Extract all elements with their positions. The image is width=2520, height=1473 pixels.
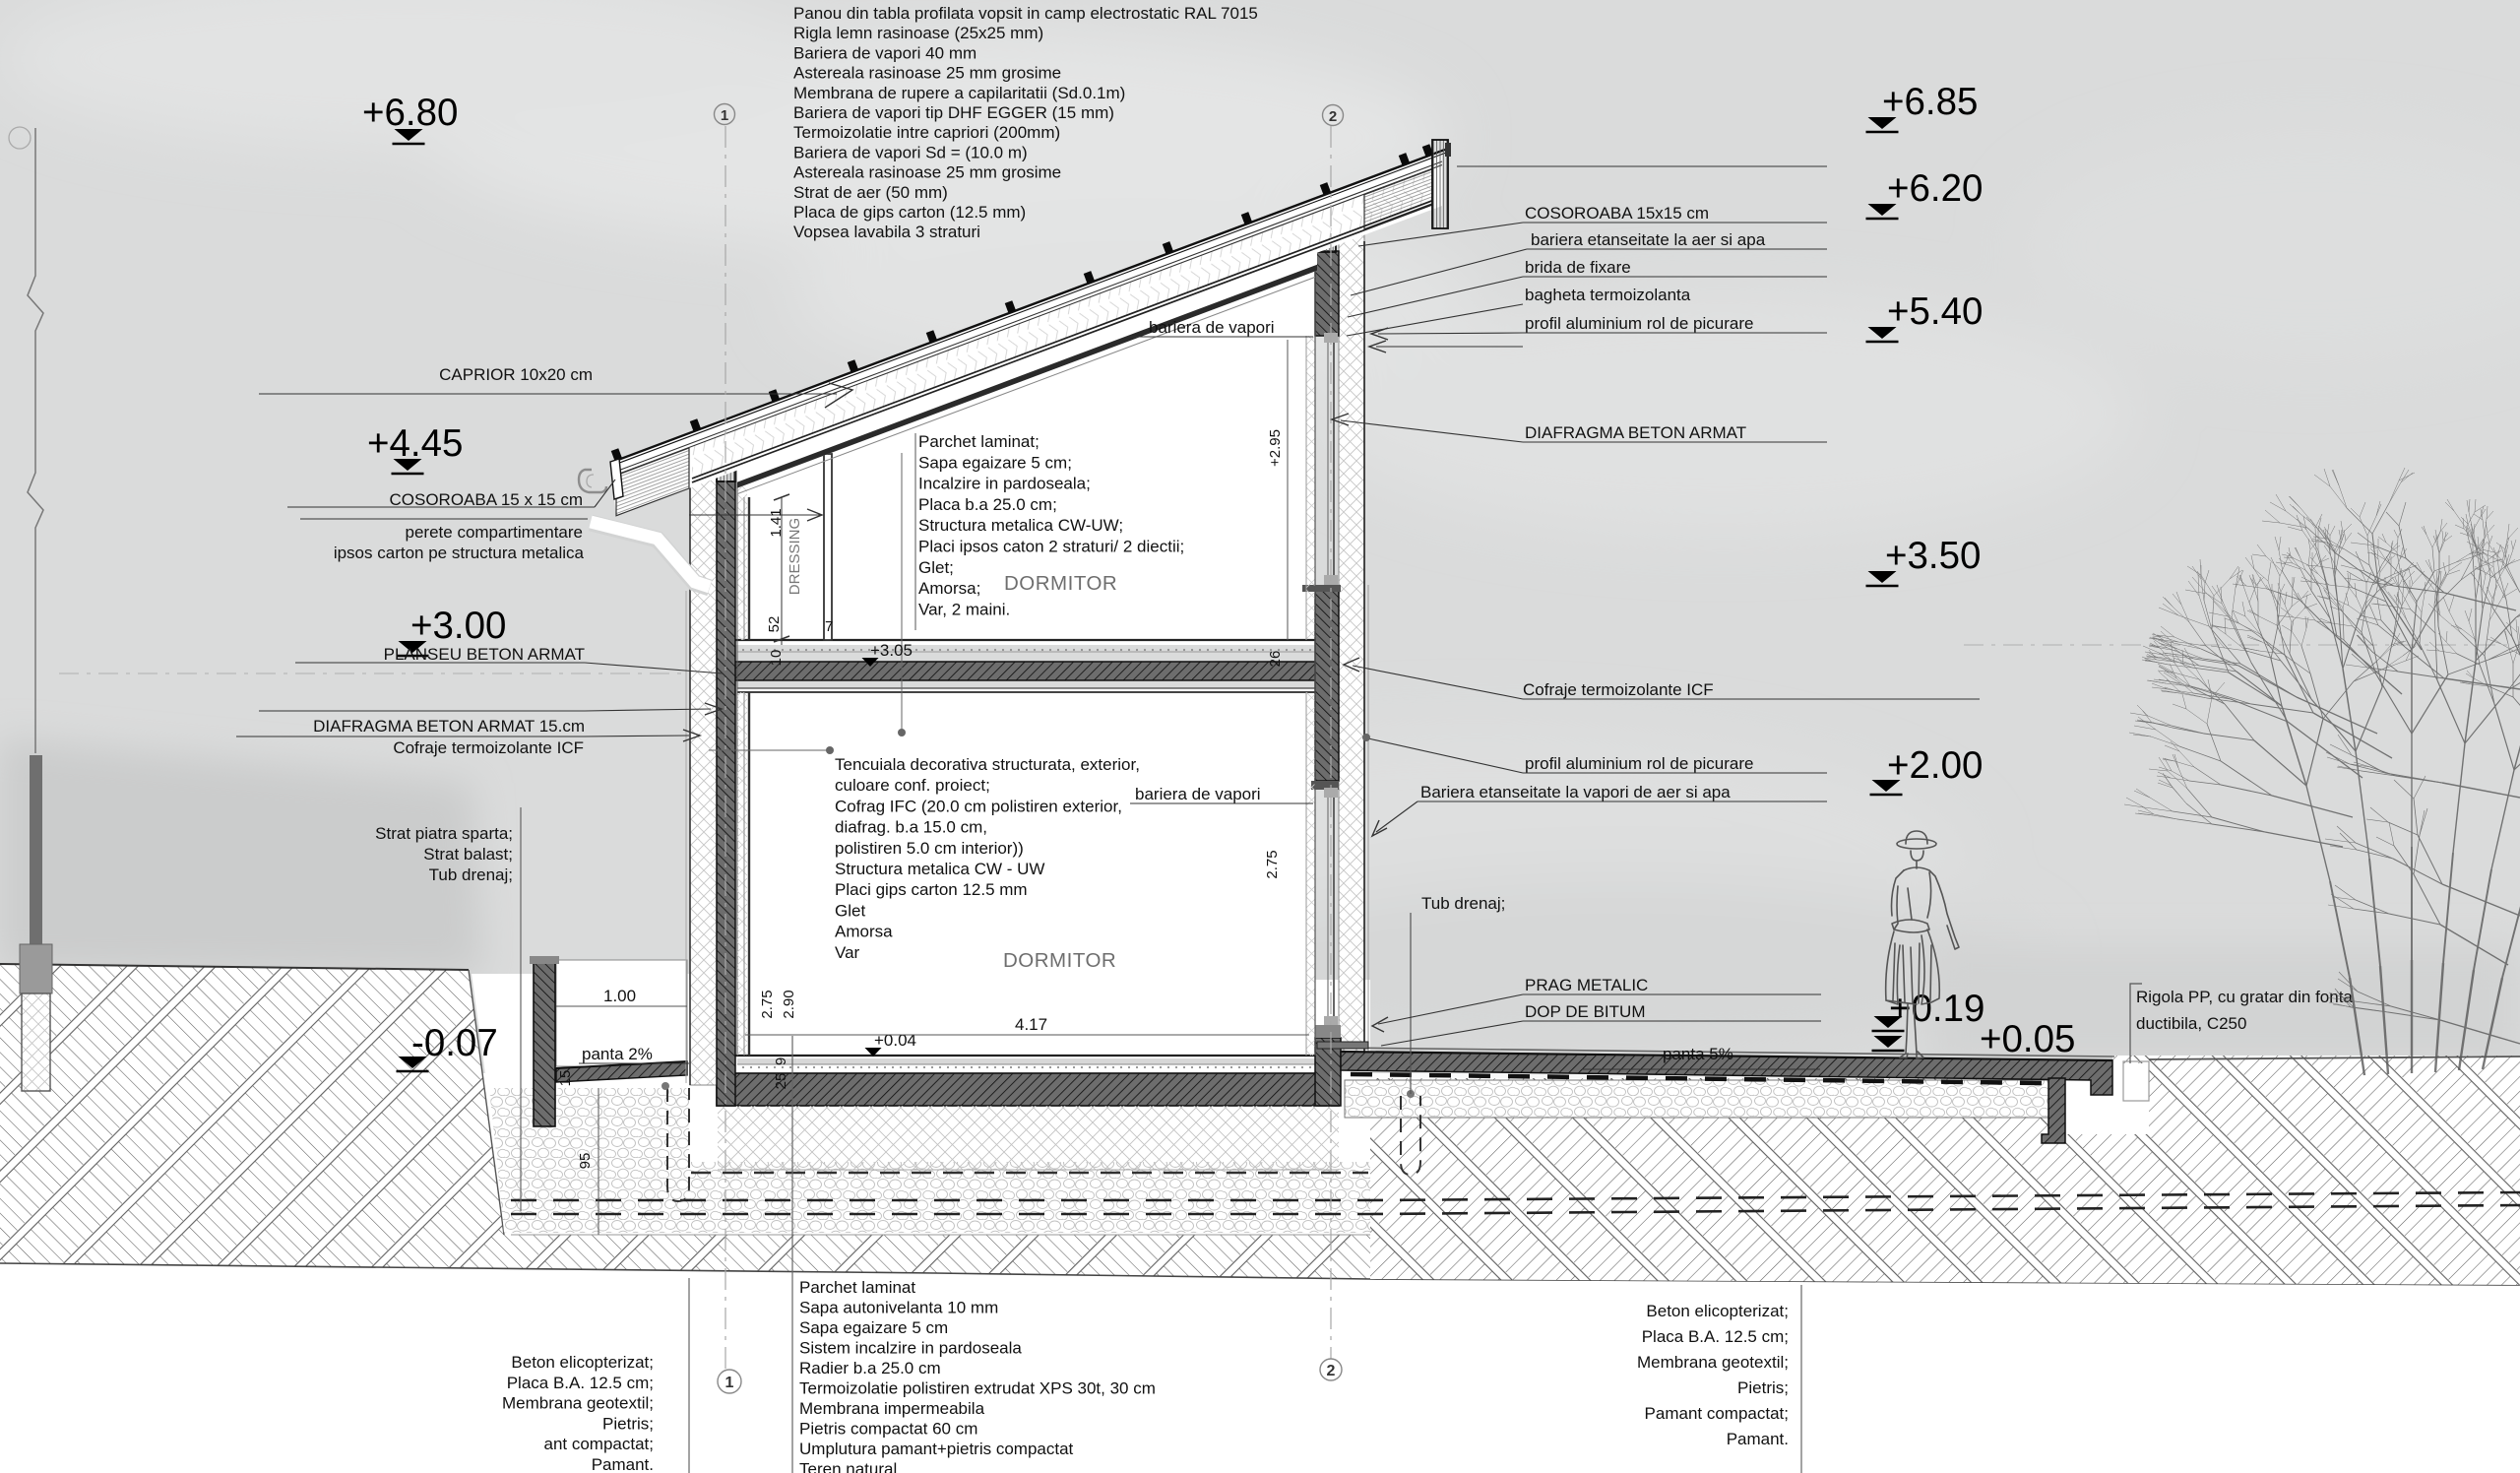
svg-text:Glet: Glet — [835, 901, 865, 920]
svg-text:Strat balast;: Strat balast; — [423, 845, 513, 864]
svg-text:Strat piatra sparta;: Strat piatra sparta; — [375, 824, 513, 843]
svg-text:+0.04: +0.04 — [874, 1031, 916, 1050]
svg-text:Pietris;: Pietris; — [1737, 1378, 1789, 1397]
svg-text:Incalzire in pardoseala;: Incalzire in pardoseala; — [918, 475, 1091, 493]
svg-text:brida de fixare: brida de fixare — [1525, 258, 1631, 277]
svg-text:Placa B.A. 12.5 cm;: Placa B.A. 12.5 cm; — [1642, 1327, 1789, 1346]
svg-text:Bariera de vapori tip DHF EGGE: Bariera de vapori tip DHF EGGER (15 mm) — [793, 103, 1114, 122]
svg-text:26: 26 — [1267, 651, 1284, 668]
svg-text:CAPRIOR 10x20 cm: CAPRIOR 10x20 cm — [439, 365, 593, 384]
svg-text:2: 2 — [1329, 108, 1337, 125]
svg-text:Bariera de vapori 40 mm: Bariera de vapori 40 mm — [793, 43, 976, 62]
svg-text:+0.19: +0.19 — [1889, 988, 1984, 1030]
svg-text:+4.45: +4.45 — [367, 422, 463, 465]
svg-text:4.17: 4.17 — [1015, 1015, 1047, 1034]
svg-text:+6.85: +6.85 — [1882, 81, 1978, 123]
svg-text:Pietris compactat 60 cm: Pietris compactat 60 cm — [799, 1420, 977, 1439]
svg-text:2.75: 2.75 — [1264, 850, 1281, 878]
svg-text:panta 2%: panta 2% — [582, 1045, 653, 1063]
svg-text:profil aluminium rol de picura: profil aluminium rol de picurare — [1525, 754, 1753, 773]
svg-text:Membrana geotextil;: Membrana geotextil; — [1637, 1353, 1789, 1372]
svg-text:Termoizolatie intre capriori (: Termoizolatie intre capriori (200mm) — [793, 123, 1060, 142]
svg-text:Structura metalica CW - UW: Structura metalica CW - UW — [835, 860, 1044, 878]
svg-text:Tencuiala decorativa structura: Tencuiala decorativa structurata, exteri… — [835, 755, 1140, 774]
svg-text:perete compartimentare: perete compartimentare — [406, 523, 583, 542]
svg-text:Radier b.a 25.0 cm: Radier b.a 25.0 cm — [799, 1359, 941, 1377]
svg-text:polistiren 5.0 cm interior)): polistiren 5.0 cm interior)) — [835, 839, 1024, 858]
svg-text:DOP DE BITUM: DOP DE BITUM — [1525, 1002, 1645, 1021]
svg-text:COSOROABA 15x15 cm: COSOROABA 15x15 cm — [1525, 204, 1709, 223]
svg-text:bariera de vapori: bariera de vapori — [1135, 785, 1261, 803]
svg-text:Vopsea lavabila 3 straturi: Vopsea lavabila 3 straturi — [793, 223, 980, 241]
svg-text:1.41: 1.41 — [768, 508, 785, 537]
svg-text:10: 10 — [768, 650, 785, 667]
svg-text:+3.05: +3.05 — [870, 641, 913, 660]
svg-text:Amorsa;: Amorsa; — [918, 579, 980, 598]
svg-text:Termoizolatie polistiren extru: Termoizolatie polistiren extrudat XPS 30… — [799, 1379, 1156, 1398]
svg-text:2: 2 — [1327, 1363, 1336, 1379]
svg-text:Structura metalica CW-UW;: Structura metalica CW-UW; — [918, 516, 1123, 535]
svg-text:ant compactat;: ant compactat; — [543, 1435, 654, 1453]
svg-text:Placi gips carton 12.5 mm: Placi gips carton 12.5 mm — [835, 880, 1028, 899]
svg-text:Teren natural: Teren natural — [799, 1460, 897, 1473]
svg-text:2.75: 2.75 — [759, 990, 776, 1018]
svg-text:bagheta termoizolanta: bagheta termoizolanta — [1525, 286, 1691, 304]
svg-text:+3.00: +3.00 — [410, 605, 506, 647]
svg-text:Placa B.A. 12.5 cm;: Placa B.A. 12.5 cm; — [507, 1374, 654, 1392]
svg-text:1: 1 — [721, 107, 728, 124]
svg-text:Membrana geotextil;: Membrana geotextil; — [502, 1394, 654, 1413]
svg-text:DORMITOR: DORMITOR — [1003, 949, 1116, 972]
svg-text:COSOROABA 15 x 15 cm: COSOROABA 15 x 15 cm — [389, 490, 583, 509]
svg-text:Astereala rasinoase 25 mm gros: Astereala rasinoase 25 mm grosime — [793, 163, 1061, 182]
svg-text:Bariera de vapori Sd = (10.0 m: Bariera de vapori Sd = (10.0 m) — [793, 143, 1028, 161]
svg-text:Pietris;: Pietris; — [602, 1414, 654, 1433]
svg-text:1: 1 — [725, 1375, 734, 1391]
svg-text:Membrana impermeabila: Membrana impermeabila — [799, 1399, 985, 1418]
svg-text:Rigla lemn rasinoase (25x25 mm: Rigla lemn rasinoase (25x25 mm) — [793, 24, 1043, 42]
svg-text:Rigola PP, cu gratar din fonta: Rigola PP, cu gratar din fonta — [2136, 988, 2353, 1006]
svg-text:+6.80: +6.80 — [362, 92, 458, 134]
svg-text:Astereala rasinoase 25 mm gros: Astereala rasinoase 25 mm grosime — [793, 64, 1061, 83]
svg-text:Placa de gips carton (12.5 mm): Placa de gips carton (12.5 mm) — [793, 203, 1026, 222]
svg-text:DIAFRAGMA BETON ARMAT: DIAFRAGMA BETON ARMAT — [1525, 423, 1746, 442]
svg-text:Placi ipsos caton 2 straturi/: Placi ipsos caton 2 straturi/ 2 diectii; — [918, 538, 1184, 556]
svg-text:Cofrag IFC (20.0 cm polistiren: Cofrag IFC (20.0 cm polistiren exterior, — [835, 797, 1122, 815]
svg-text:Pamant.: Pamant. — [592, 1455, 654, 1473]
svg-text:95: 95 — [577, 1153, 594, 1170]
svg-text:bariera etanseitate la aer si: bariera etanseitate la aer si apa — [1531, 230, 1766, 249]
svg-text:+5.40: +5.40 — [1887, 290, 1983, 333]
svg-text:Cofraje termoizolante ICF: Cofraje termoizolante ICF — [393, 738, 584, 757]
svg-text:15: 15 — [557, 1070, 574, 1087]
svg-text:52: 52 — [766, 616, 783, 633]
svg-text:Membrana de rupere a capilarit: Membrana de rupere a capilaritatii (Sd.0… — [793, 84, 1125, 102]
svg-text:ductibila, C250: ductibila, C250 — [2136, 1014, 2246, 1033]
svg-text:Sapa egaizare 5 cm: Sapa egaizare 5 cm — [799, 1318, 948, 1337]
svg-text:Beton elicopterizat;: Beton elicopterizat; — [511, 1353, 654, 1372]
svg-text:Placa b.a 25.0 cm;: Placa b.a 25.0 cm; — [918, 495, 1057, 514]
svg-text:Pamant.: Pamant. — [1727, 1430, 1789, 1448]
svg-text:Strat de aer (50 mm): Strat de aer (50 mm) — [793, 183, 948, 202]
svg-text:+2.95: +2.95 — [1267, 429, 1284, 467]
svg-text:PLANSEU BETON ARMAT: PLANSEU BETON ARMAT — [384, 645, 585, 664]
svg-text:Var, 2 maini.: Var, 2 maini. — [918, 600, 1010, 618]
svg-text:1.00: 1.00 — [603, 987, 636, 1005]
svg-text:+0.05: +0.05 — [1980, 1018, 2075, 1060]
svg-text:DORMITOR: DORMITOR — [1004, 572, 1117, 595]
svg-text:Tub drenaj;: Tub drenaj; — [1421, 894, 1505, 913]
svg-text:Sistem incalzire in pardoseala: Sistem incalzire in pardoseala — [799, 1339, 1022, 1358]
svg-text:Panou din tabla profilata vops: Panou din tabla profilata vopsit in camp… — [793, 4, 1258, 23]
svg-text:bariera de vapori: bariera de vapori — [1149, 318, 1275, 337]
svg-text:Parchet laminat: Parchet laminat — [799, 1278, 915, 1297]
svg-text:7: 7 — [825, 618, 833, 635]
svg-text:Parchet laminat;: Parchet laminat; — [918, 432, 1039, 451]
svg-text:Var: Var — [835, 943, 860, 962]
svg-text:Tub drenaj;: Tub drenaj; — [429, 865, 513, 884]
svg-text:Sapa autonivelanta 10 mm: Sapa autonivelanta 10 mm — [799, 1299, 998, 1317]
svg-text:+3.50: +3.50 — [1885, 535, 1981, 577]
svg-text:Sapa egaizare 5 cm;: Sapa egaizare 5 cm; — [918, 453, 1072, 472]
svg-text:DRESSING: DRESSING — [787, 518, 803, 595]
svg-text:Glet;: Glet; — [918, 558, 954, 577]
svg-text:Beton elicopterizat;: Beton elicopterizat; — [1646, 1302, 1789, 1320]
svg-text:DIAFRAGMA BETON ARMAT 15.cm: DIAFRAGMA BETON ARMAT 15.cm — [313, 717, 585, 736]
svg-text:+6.20: +6.20 — [1887, 167, 1983, 210]
svg-text:Bariera etanseitate la vapori: Bariera etanseitate la vapori de aer si … — [1420, 783, 1731, 801]
svg-text:profil aluminium rol de picura: profil aluminium rol de picurare — [1525, 314, 1753, 333]
svg-text:panta 5%: panta 5% — [1663, 1045, 1733, 1063]
svg-text:culoare conf. proiect;: culoare conf. proiect; — [835, 776, 990, 795]
svg-text:25: 25 — [773, 1073, 789, 1090]
svg-text:Amorsa: Amorsa — [835, 923, 893, 941]
svg-text:Umplutura pamant+pietris compa: Umplutura pamant+pietris compactat — [799, 1440, 1074, 1458]
svg-text:PRAG METALIC: PRAG METALIC — [1525, 976, 1648, 994]
svg-text:9: 9 — [773, 1057, 789, 1065]
svg-text:ipsos carton pe structura meta: ipsos carton pe structura metalica — [334, 544, 585, 562]
svg-text:+2.00: +2.00 — [1887, 744, 1983, 787]
svg-text:Cofraje termoizolante ICF: Cofraje termoizolante ICF — [1523, 680, 1714, 699]
svg-text:diafrag. b.a 15.0 cm,: diafrag. b.a 15.0 cm, — [835, 818, 987, 837]
svg-text:2.90: 2.90 — [781, 990, 797, 1018]
svg-text:Pamant compactat;: Pamant compactat; — [1645, 1404, 1789, 1423]
